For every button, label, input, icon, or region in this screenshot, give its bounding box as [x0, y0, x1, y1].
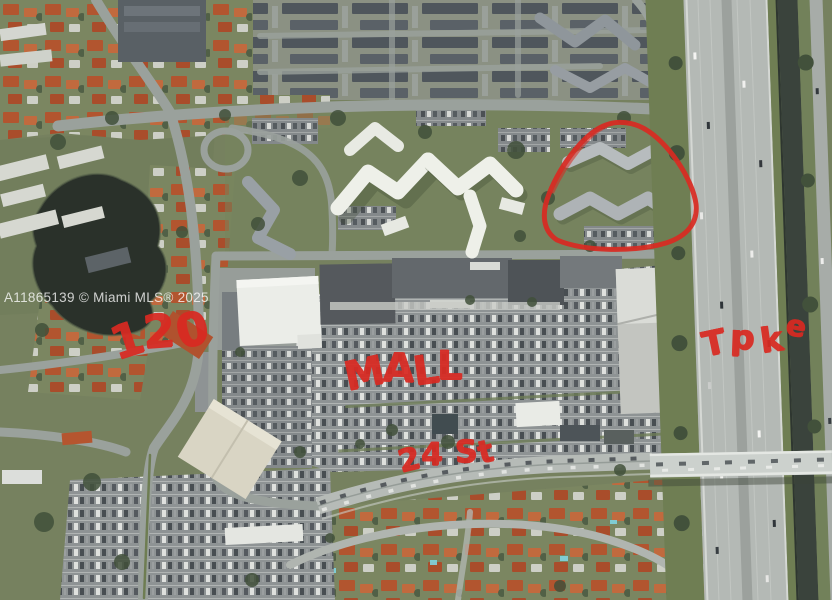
satellite-imagery	[0, 0, 832, 600]
turnpike-highway	[645, 0, 832, 600]
big-box-store	[236, 276, 322, 352]
aerial-photo: A11865139 © Miami MLS® 2025 120 MALL 24 …	[0, 0, 832, 600]
overpass	[648, 450, 832, 486]
